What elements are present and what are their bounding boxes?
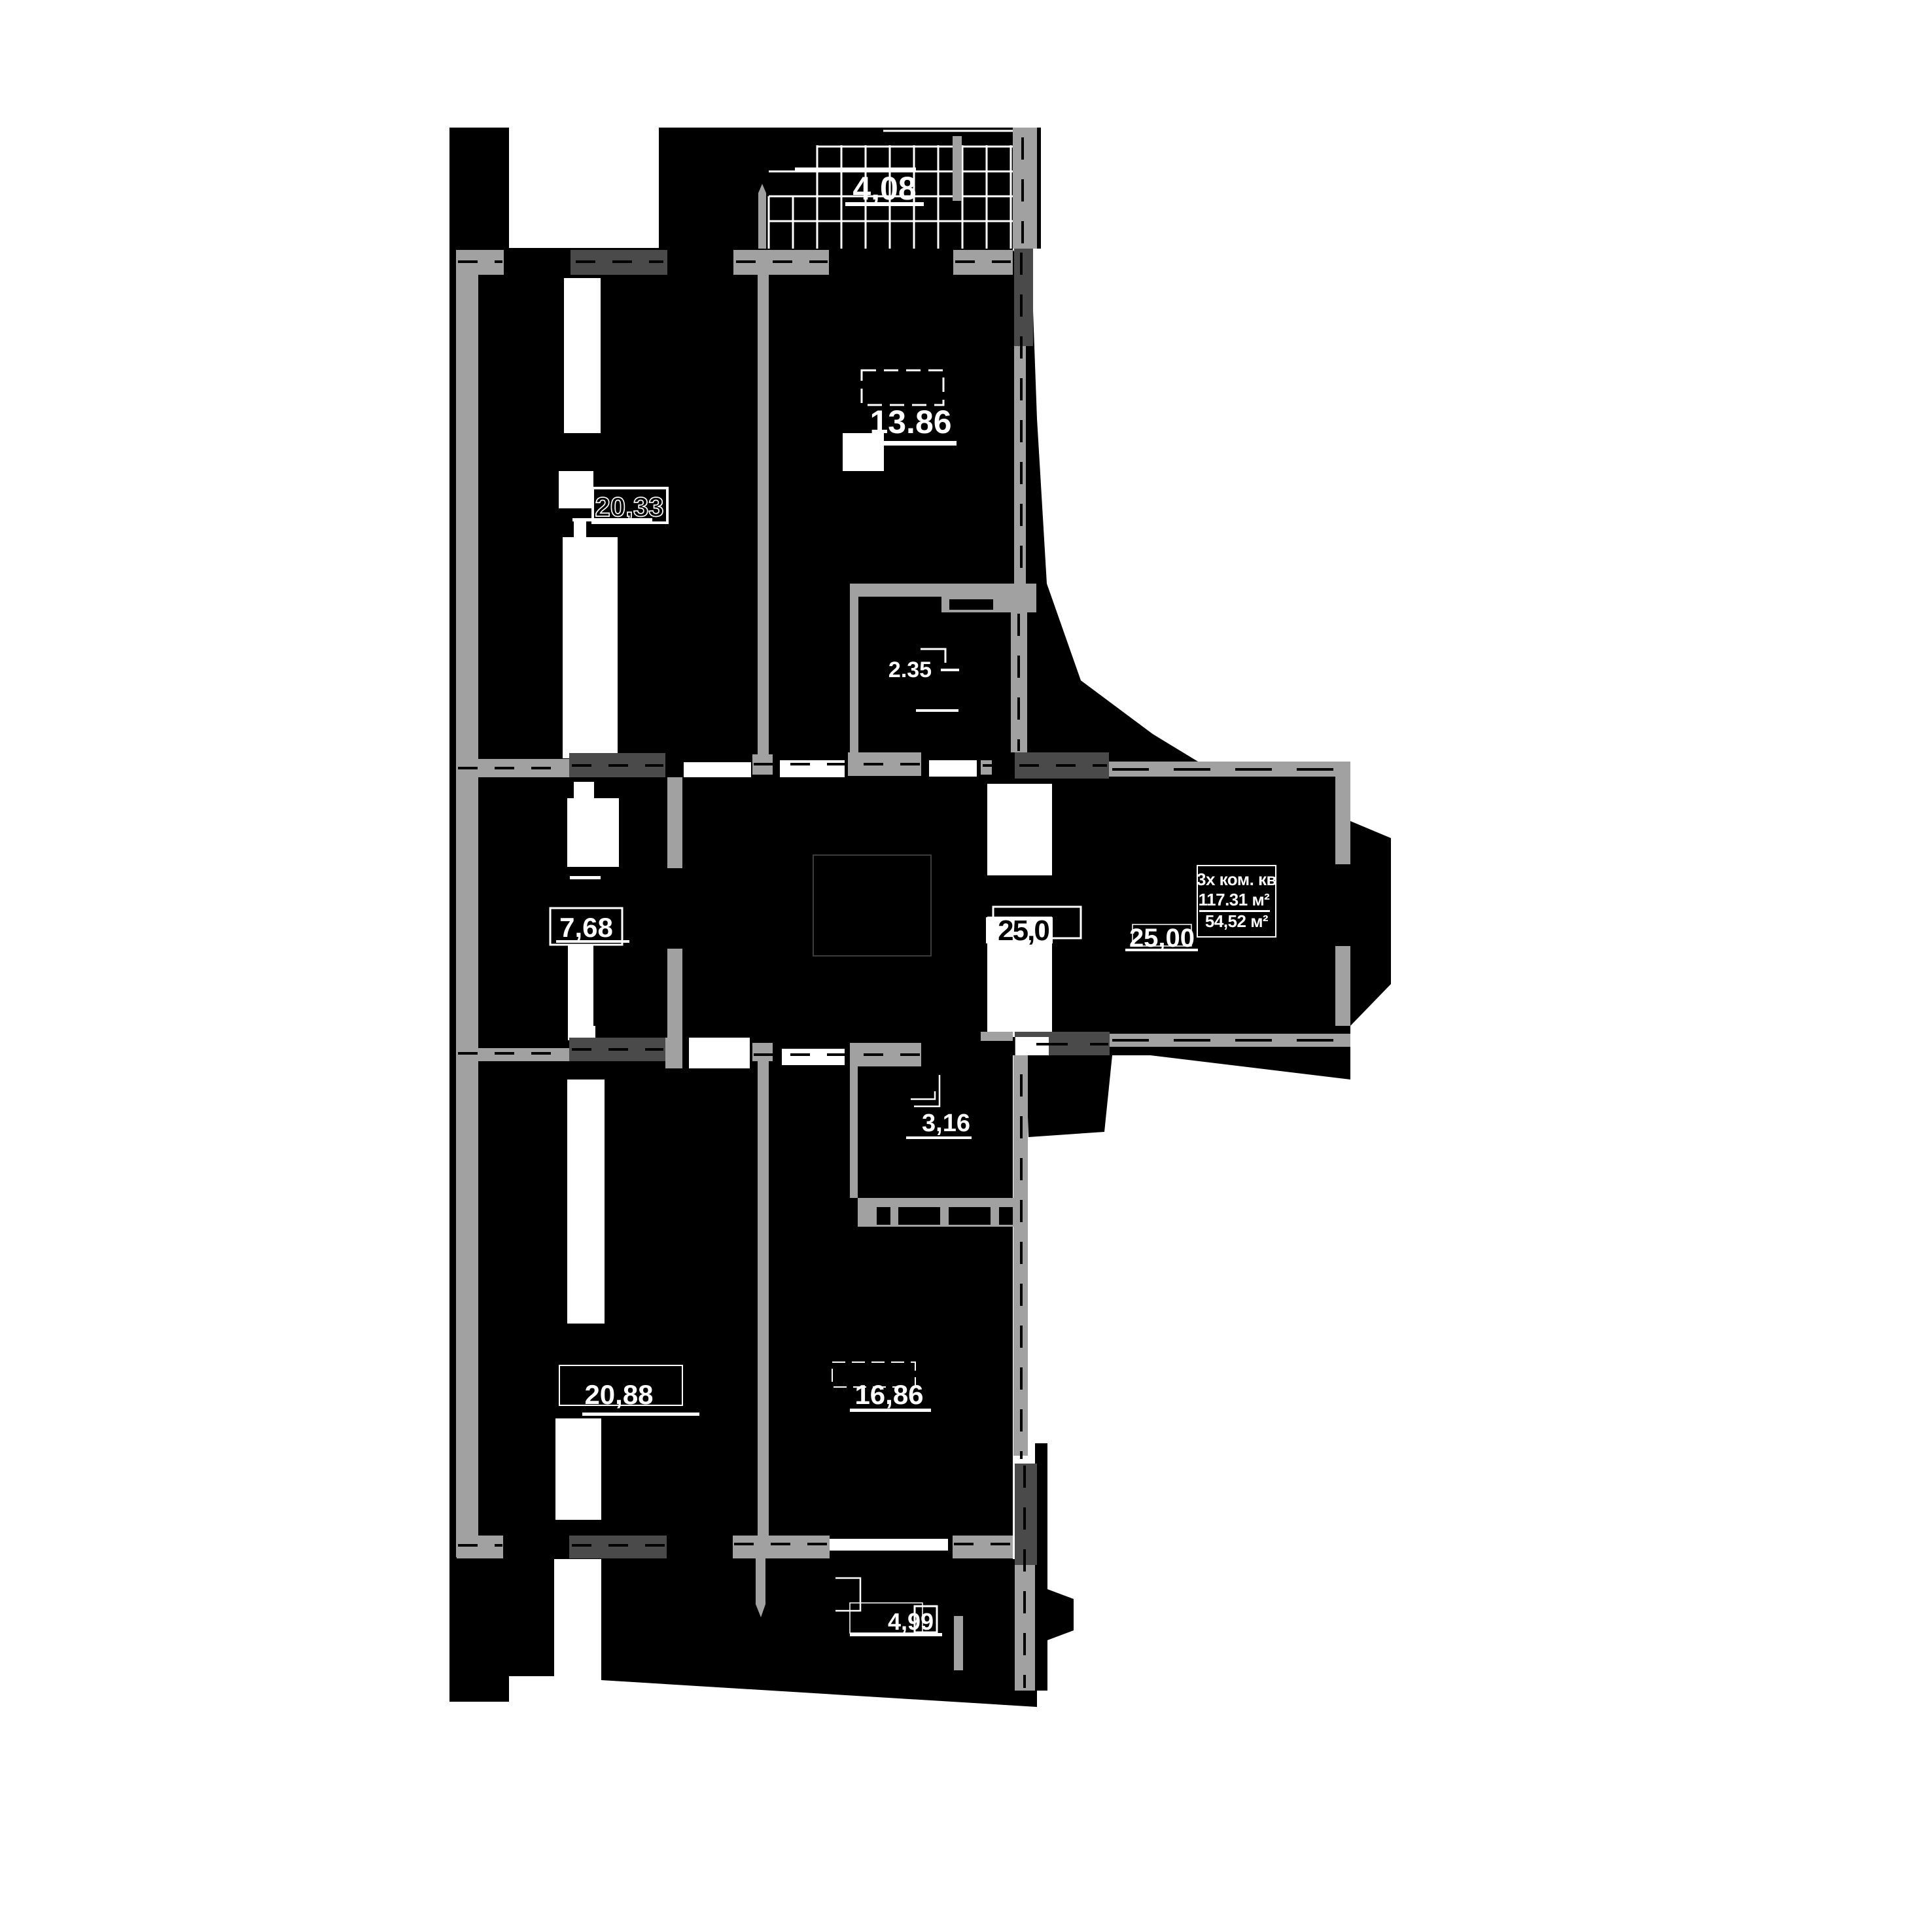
svg-text:20,33: 20,33 [595, 491, 663, 522]
svg-text:16,86: 16,86 [854, 1379, 923, 1410]
svg-text:25,0: 25,0 [998, 915, 1049, 947]
svg-text:25,00: 25,00 [1129, 924, 1195, 953]
svg-text:117.31 м²: 117.31 м² [1199, 890, 1271, 909]
svg-text:3х ком. кв: 3х ком. кв [1197, 869, 1276, 889]
svg-text:20,88: 20,88 [584, 1379, 653, 1410]
svg-text:54,52 м²: 54,52 м² [1205, 911, 1269, 931]
svg-text:13.86: 13.86 [869, 404, 951, 440]
svg-text:7,68: 7,68 [559, 912, 613, 943]
svg-text:2.35: 2.35 [888, 658, 932, 682]
svg-text:3,16: 3,16 [922, 1110, 970, 1137]
svg-text:4,99: 4,99 [888, 1608, 934, 1635]
svg-text:4,08: 4,08 [852, 170, 916, 207]
